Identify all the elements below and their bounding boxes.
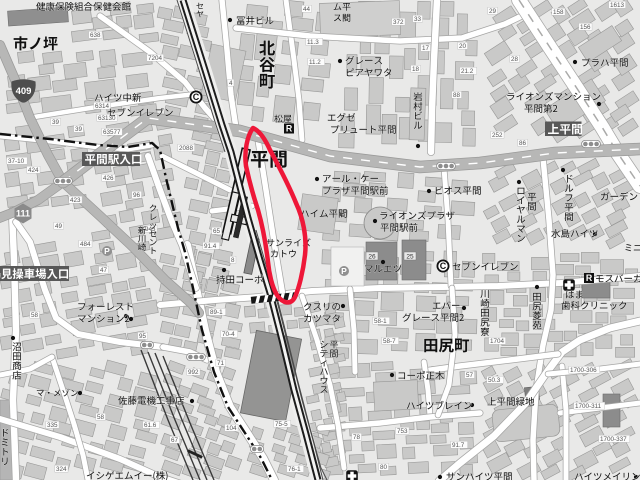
- svg-text:992: 992: [188, 369, 199, 376]
- svg-text:8: 8: [231, 257, 235, 264]
- svg-text:88: 88: [453, 92, 461, 99]
- svg-text:37-10: 37-10: [8, 158, 25, 165]
- svg-text:R: R: [586, 273, 593, 283]
- svg-text:4: 4: [229, 80, 233, 87]
- svg-text:158: 158: [553, 9, 564, 16]
- svg-text:28: 28: [511, 56, 519, 63]
- svg-text:1613: 1613: [610, 2, 625, 9]
- svg-text:372: 372: [393, 19, 404, 26]
- svg-text:324: 324: [56, 466, 67, 473]
- svg-text:57: 57: [466, 372, 474, 379]
- svg-text:89-1: 89-1: [210, 309, 223, 316]
- svg-text:50.3: 50.3: [488, 377, 501, 384]
- svg-text:96: 96: [133, 192, 141, 199]
- svg-text:424: 424: [28, 167, 39, 174]
- svg-text:11.3: 11.3: [307, 39, 319, 46]
- svg-text:18: 18: [412, 66, 420, 73]
- svg-text:95: 95: [139, 333, 147, 340]
- svg-text:1700-337: 1700-337: [600, 436, 627, 443]
- svg-text:6314: 6314: [95, 103, 110, 110]
- svg-text:R: R: [286, 124, 293, 134]
- svg-text:44: 44: [303, 6, 311, 13]
- svg-text:P: P: [341, 266, 347, 276]
- svg-text:1700-311: 1700-311: [575, 403, 602, 410]
- svg-text:58: 58: [97, 414, 105, 421]
- svg-text:484: 484: [80, 241, 91, 248]
- svg-text:39: 39: [75, 126, 83, 133]
- svg-text:75-5: 75-5: [275, 421, 288, 428]
- svg-text:252: 252: [492, 132, 503, 139]
- svg-text:25: 25: [406, 254, 414, 261]
- svg-text:91.4: 91.4: [204, 243, 217, 250]
- svg-text:71: 71: [217, 360, 225, 367]
- svg-text:76-1: 76-1: [288, 466, 301, 473]
- svg-text:335: 335: [47, 422, 58, 429]
- svg-text:29: 29: [489, 8, 497, 15]
- svg-text:11.2: 11.2: [309, 59, 321, 66]
- svg-text:80: 80: [380, 464, 388, 471]
- svg-text:409: 409: [16, 86, 32, 97]
- svg-text:638: 638: [90, 32, 101, 39]
- svg-text:426: 426: [103, 175, 114, 182]
- svg-text:21.2: 21.2: [461, 68, 474, 75]
- svg-text:753: 753: [397, 428, 408, 435]
- svg-text:156: 156: [580, 24, 591, 31]
- svg-text:65: 65: [213, 228, 221, 235]
- svg-text:49: 49: [55, 223, 63, 230]
- svg-text:58: 58: [31, 312, 39, 319]
- svg-text:2088: 2088: [179, 145, 194, 152]
- svg-text:26: 26: [368, 254, 376, 261]
- svg-text:91.7: 91.7: [452, 442, 465, 449]
- svg-text:111: 111: [16, 209, 30, 219]
- svg-text:70-4: 70-4: [222, 331, 235, 338]
- svg-text:58-1: 58-1: [374, 318, 387, 325]
- svg-text:P: P: [104, 246, 110, 256]
- svg-text:78: 78: [353, 434, 361, 441]
- svg-text:C: C: [193, 92, 200, 102]
- svg-text:39: 39: [52, 119, 60, 126]
- svg-text:104: 104: [226, 425, 237, 432]
- svg-text:63577: 63577: [103, 129, 121, 136]
- svg-text:1700-306: 1700-306: [570, 367, 597, 374]
- svg-text:61.6: 61.6: [144, 422, 157, 429]
- svg-text:47: 47: [100, 267, 108, 274]
- svg-text:86: 86: [519, 140, 527, 147]
- svg-text:20: 20: [459, 43, 467, 50]
- svg-text:423: 423: [70, 197, 81, 204]
- svg-text:C: C: [440, 261, 447, 271]
- svg-text:58-7: 58-7: [383, 338, 396, 345]
- svg-text:67: 67: [171, 437, 179, 444]
- svg-text:7204: 7204: [148, 55, 163, 62]
- svg-text:33: 33: [414, 16, 422, 23]
- svg-text:17: 17: [422, 45, 430, 52]
- svg-text:1704: 1704: [490, 338, 505, 345]
